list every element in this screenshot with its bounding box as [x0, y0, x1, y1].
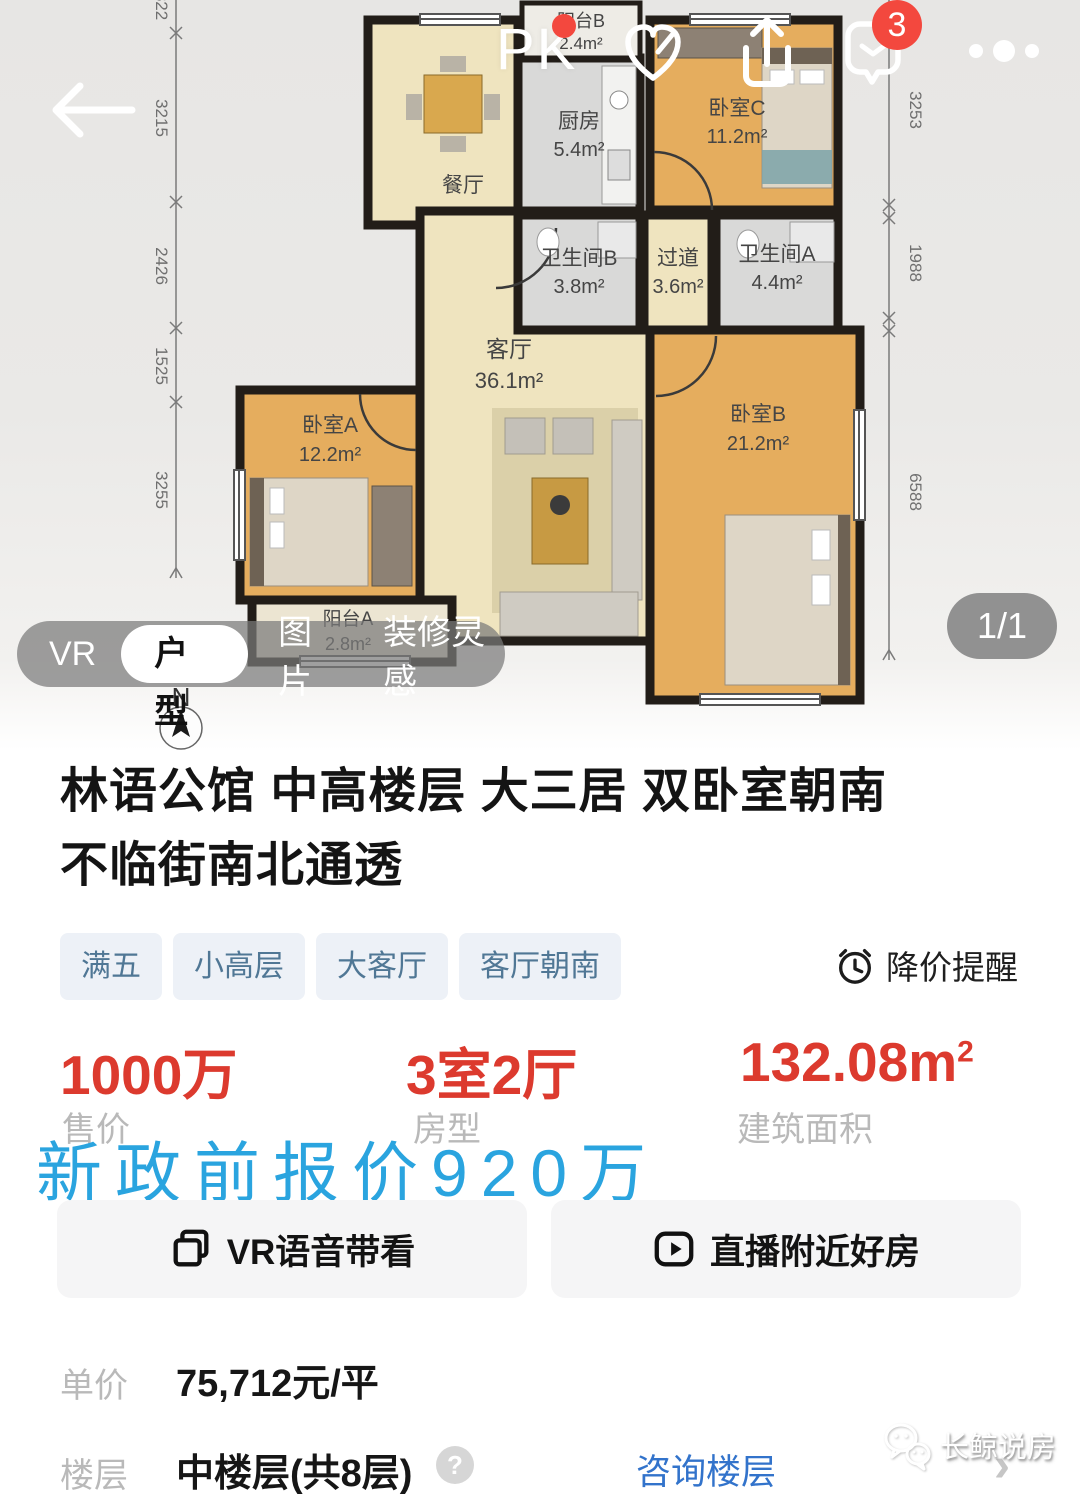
floorplan-photo-area: 822 3215 2426 1525 3255 3253 1988 6588	[0, 0, 1080, 750]
wechat-bubbles-icon	[882, 1418, 932, 1472]
more-dots-icon	[966, 38, 1042, 64]
price-alert-label: 降价提醒	[886, 941, 1018, 989]
heart-icon	[620, 22, 686, 88]
area-value: 132.08m2	[740, 1030, 974, 1094]
dim-left-0: 822	[152, 0, 171, 20]
dim-right-2: 6588	[906, 473, 925, 511]
page-indicator: 1/1	[947, 593, 1057, 659]
media-tabbar: VR 户型 图片 装修灵感	[17, 621, 505, 687]
dim-right-0: 3253	[906, 91, 925, 129]
area-number: 132.08m	[740, 1031, 957, 1093]
label-bedroom-b: 卧室B	[730, 403, 786, 426]
price-value: 1000万	[60, 1030, 237, 1110]
dim-left-3: 1525	[152, 347, 171, 385]
tag-item: 大客厅	[316, 933, 448, 1000]
area-kitchen: 5.4m²	[553, 139, 604, 161]
area-bath-a: 4.4m²	[751, 272, 802, 294]
back-button[interactable]	[44, 78, 140, 147]
tag-list: 满五 小高层 大客厅 客厅朝南	[60, 933, 621, 1000]
tab-floorplan[interactable]: 户型	[121, 625, 248, 683]
vr-cube-icon	[169, 1227, 213, 1271]
share-button[interactable]	[732, 12, 802, 99]
tab-decoration[interactable]: 装修灵感	[383, 605, 505, 703]
area-living: 36.1m²	[475, 368, 543, 393]
live-stream-label: 直播附近好房	[710, 1224, 920, 1275]
dim-left-4: 3255	[152, 471, 171, 509]
dim-left-2: 2426	[152, 247, 171, 285]
message-count-badge: 3	[872, 0, 922, 50]
area-hallway: 3.6m²	[652, 276, 703, 298]
tab-photos[interactable]: 图片	[278, 605, 339, 703]
back-arrow-icon	[44, 78, 140, 142]
watermark-text: 长鲸说房	[940, 1424, 1056, 1466]
listing-title: 林语公馆 中高楼层 大三居 双卧室朝南 不临街南北通透	[60, 755, 1025, 903]
label-bath-a: 卫生间A	[738, 243, 815, 266]
vr-tour-button[interactable]: VR语音带看	[57, 1200, 527, 1298]
dim-right-1: 1988	[906, 244, 925, 282]
dimension-line-right	[883, 0, 895, 660]
vr-tour-label: VR语音带看	[227, 1224, 416, 1275]
label-hallway: 过道	[657, 247, 699, 270]
share-icon	[732, 12, 802, 94]
floor-help-icon[interactable]: ?	[436, 1446, 474, 1484]
pk-notification-dot	[552, 14, 576, 38]
floor-label: 楼层	[60, 1448, 128, 1497]
play-video-icon	[652, 1227, 696, 1271]
unit-price-label: 单价	[60, 1358, 128, 1407]
label-living: 客厅	[486, 336, 532, 362]
label-bedroom-a: 卧室A	[302, 414, 358, 437]
tab-vr[interactable]: VR	[49, 635, 96, 674]
watermark: 长鲸说房	[882, 1418, 1056, 1472]
room-hallway	[644, 215, 712, 330]
consult-floor-link[interactable]: 咨询楼层	[636, 1444, 776, 1495]
area-caption: 建筑面积	[737, 1102, 873, 1151]
label-bath-b: 卫生间B	[540, 247, 617, 270]
title-line-2: 不临街南北通透	[60, 829, 1025, 903]
area-superscript: 2	[957, 1036, 974, 1069]
favorite-button[interactable]	[620, 22, 686, 93]
unit-price-value: 75,712元/平	[176, 1352, 379, 1407]
price-alert-button[interactable]: 降价提醒	[834, 941, 1018, 989]
more-button[interactable]	[966, 38, 1042, 69]
tag-item: 客厅朝南	[459, 933, 621, 1000]
tag-item: 小高层	[173, 933, 305, 1000]
dim-left-1: 3215	[152, 99, 171, 137]
layout-value: 3室2厅	[406, 1030, 577, 1110]
area-bedroom-c: 11.2m²	[707, 126, 768, 148]
label-dining: 餐厅	[442, 174, 484, 197]
label-bedroom-c: 卧室C	[708, 97, 765, 120]
live-stream-button[interactable]: 直播附近好房	[551, 1200, 1021, 1298]
area-bedroom-b: 21.2m²	[727, 433, 790, 455]
alarm-clock-icon	[834, 944, 876, 986]
area-bedroom-a: 12.2m²	[299, 444, 362, 466]
area-bath-b: 3.8m²	[553, 276, 604, 298]
tag-item: 满五	[60, 933, 162, 1000]
title-line-1: 林语公馆 中高楼层 大三居 双卧室朝南	[60, 755, 1025, 829]
label-kitchen: 厨房	[558, 110, 600, 133]
